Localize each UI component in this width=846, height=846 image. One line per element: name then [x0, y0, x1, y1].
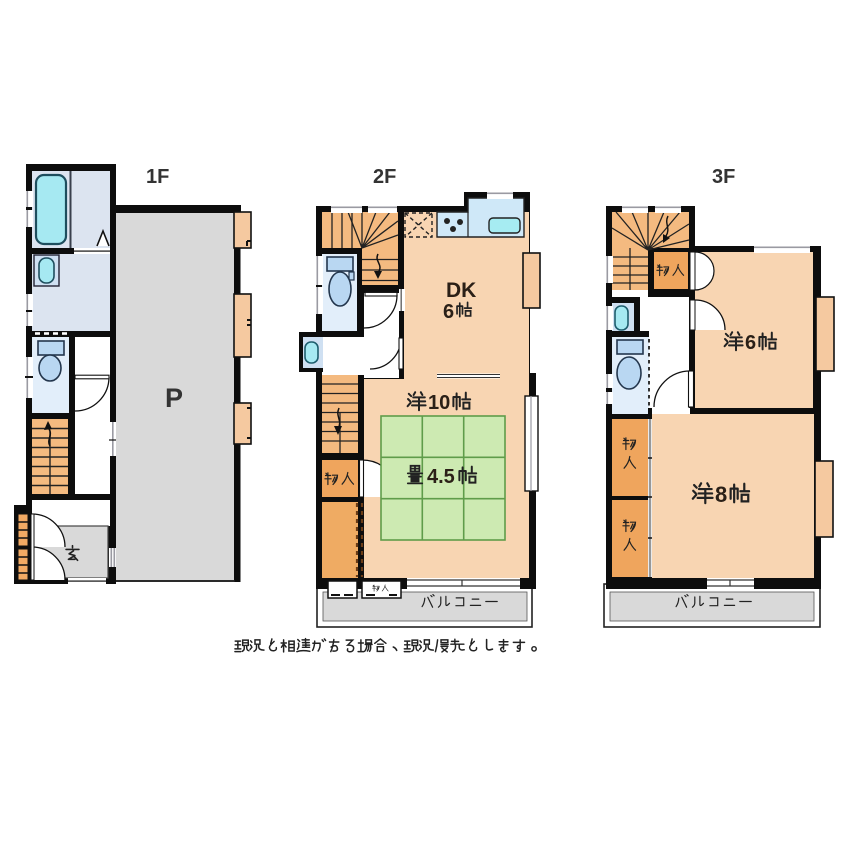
svg-text:P: P — [165, 383, 183, 413]
svg-text:1F: 1F — [146, 166, 169, 188]
svg-text:10: 10 — [428, 392, 450, 414]
svg-text:6: 6 — [745, 332, 756, 354]
svg-text:3F: 3F — [712, 166, 735, 188]
svg-text:2F: 2F — [373, 166, 396, 188]
svg-text:4.5: 4.5 — [427, 466, 455, 488]
svg-text:DK: DK — [446, 279, 476, 302]
svg-text:6: 6 — [443, 301, 454, 323]
svg-text:8: 8 — [715, 482, 727, 507]
